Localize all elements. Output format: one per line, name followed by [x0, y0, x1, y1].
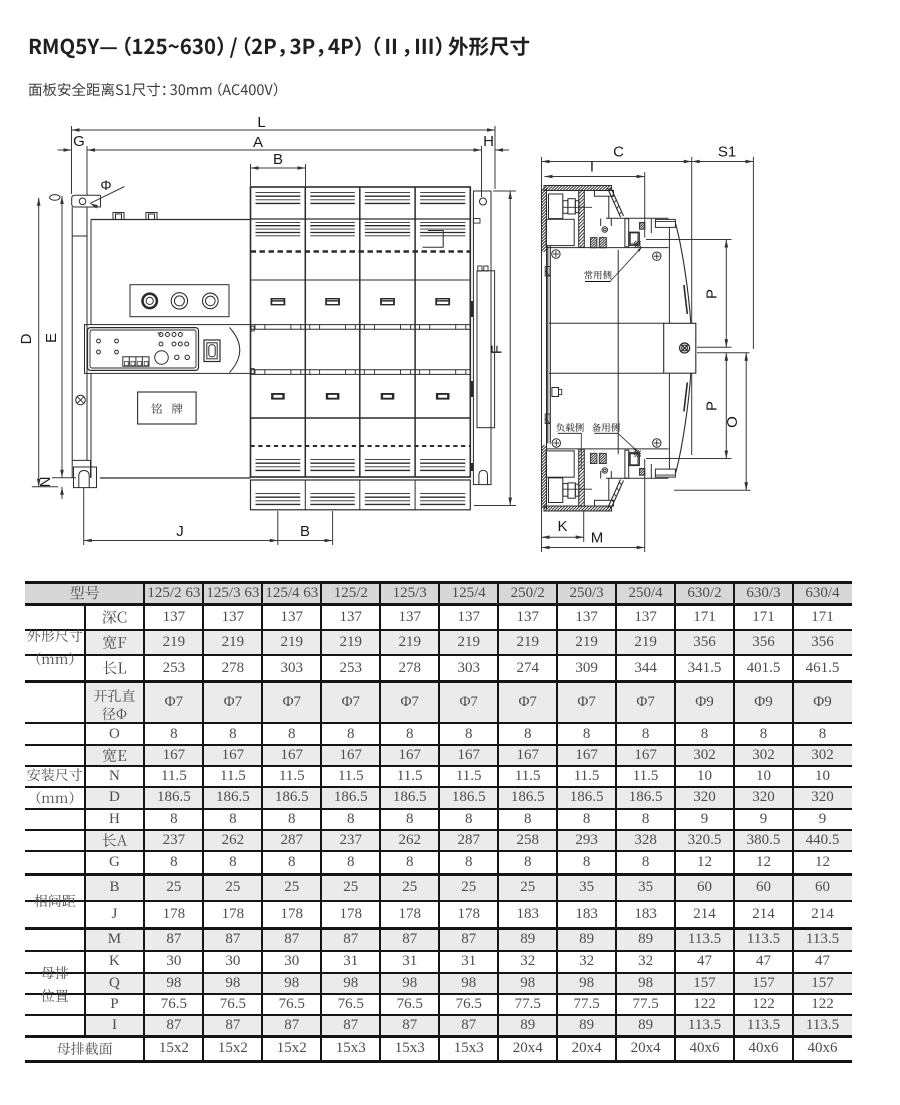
svg-text:H: H — [483, 133, 494, 150]
svg-text:P: P — [704, 401, 721, 411]
svg-text:P: P — [704, 289, 721, 299]
svg-text:J: J — [176, 523, 184, 540]
svg-text:I: I — [590, 159, 594, 176]
svg-text:M: M — [591, 530, 604, 547]
svg-text:E: E — [43, 333, 60, 343]
svg-text:D: D — [18, 333, 35, 344]
svg-text:O: O — [724, 416, 741, 428]
svg-text:L: L — [257, 114, 265, 131]
svg-text:K: K — [557, 518, 567, 535]
svg-text:N: N — [37, 477, 54, 488]
svg-text:B: B — [300, 523, 310, 540]
svg-text:B: B — [273, 151, 283, 168]
svg-text:G: G — [73, 133, 85, 150]
svg-text:S1: S1 — [718, 144, 736, 161]
svg-text:A: A — [253, 134, 263, 151]
svg-text:C: C — [613, 144, 624, 161]
svg-text:Φ: Φ — [100, 177, 111, 193]
